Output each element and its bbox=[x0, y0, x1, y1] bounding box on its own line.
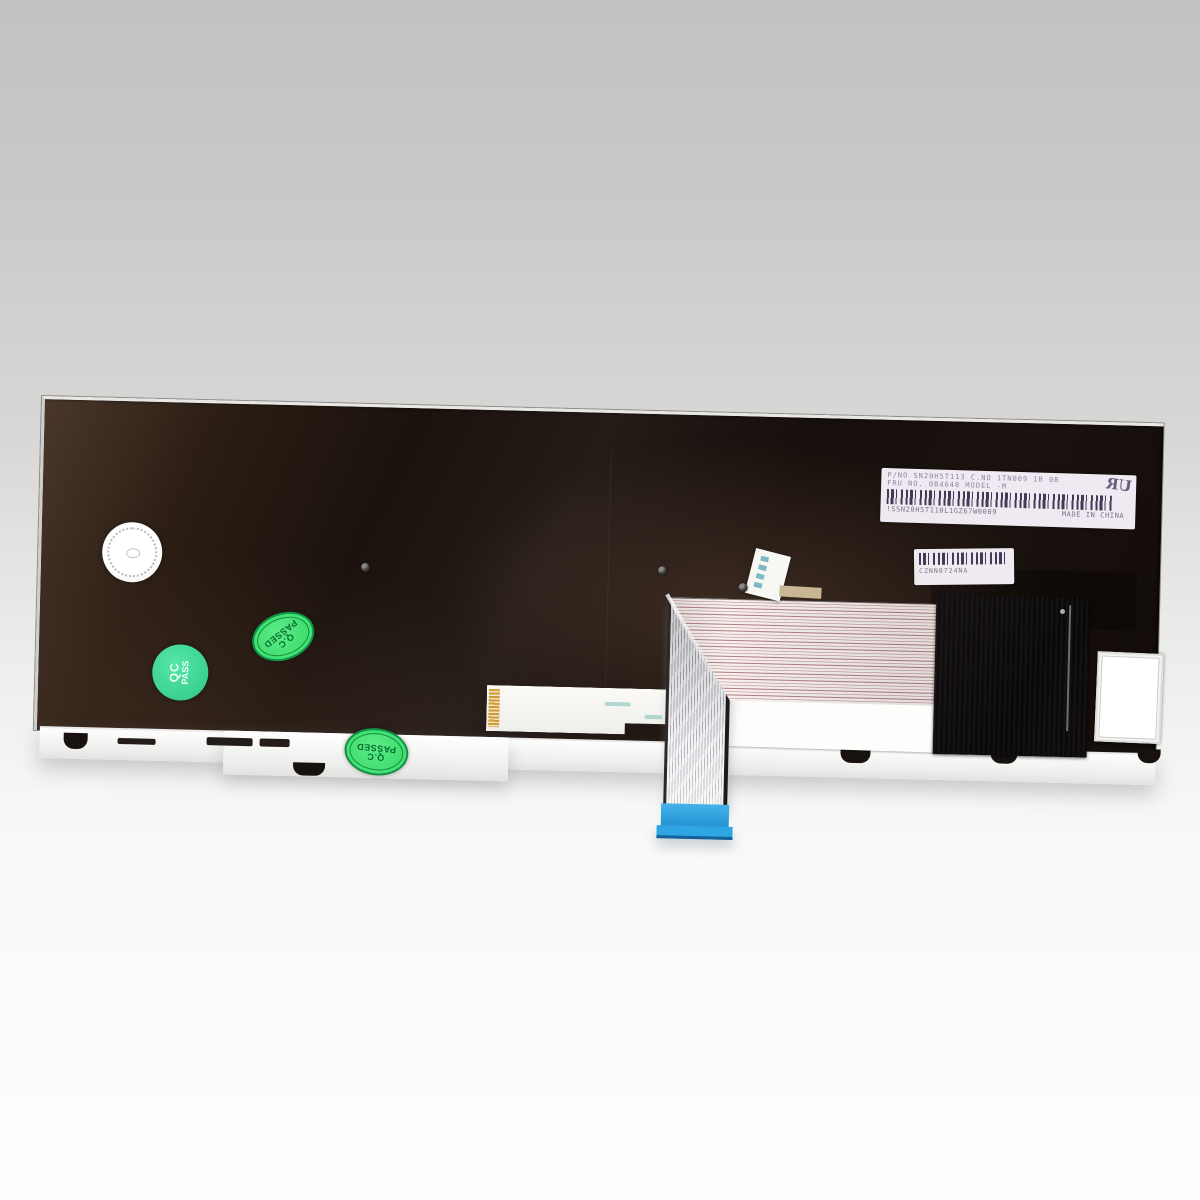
blank-white-sticker bbox=[1094, 651, 1164, 744]
cable-print-mark bbox=[605, 702, 631, 707]
backing-paper bbox=[722, 698, 951, 753]
cover-screw-dot bbox=[1060, 609, 1065, 614]
mounting-slot bbox=[260, 738, 290, 747]
main-barcode-label: P/NO SN20H5T113 C.NO 1TN009 1B 0B FRU NO… bbox=[880, 468, 1136, 530]
mounting-tab bbox=[1137, 749, 1160, 764]
ul-recognized-icon: UR bbox=[1106, 474, 1134, 495]
cover-edge-glint bbox=[1066, 605, 1071, 731]
sub-barcode-label: CZNN0724NA bbox=[914, 548, 1014, 585]
keyboard-rear-assembly: P/NO SN20H5T113 C.NO 1TN009 1B 0B FRU NO… bbox=[31, 396, 1164, 893]
qc-passed-text: Q.C PASSED bbox=[356, 741, 397, 763]
cable-contact-fingers bbox=[488, 689, 500, 727]
sub-label-code: CZNN0724NA bbox=[919, 566, 1009, 575]
barcode-small bbox=[919, 552, 1007, 565]
pull-tab-print bbox=[753, 556, 769, 591]
qc-passed-text: Q.C PASSED bbox=[262, 617, 304, 656]
qc-pass-bottom: PASS bbox=[180, 661, 192, 685]
mounting-tab bbox=[293, 762, 325, 776]
cable-print-mark bbox=[644, 715, 662, 719]
mounting-slot bbox=[207, 737, 253, 746]
mounting-slot bbox=[118, 738, 156, 745]
photo-stage: P/NO SN20H5T113 C.NO 1TN009 1B 0B FRU NO… bbox=[0, 0, 1200, 1200]
controller-cover bbox=[933, 594, 1091, 758]
label-origin: MADE IN CHINA bbox=[1062, 510, 1125, 520]
qc-passed-bottom: PASSED bbox=[357, 741, 397, 755]
connector-blue-lip bbox=[656, 825, 732, 840]
qc-pass-text: QC PASS bbox=[169, 660, 192, 684]
